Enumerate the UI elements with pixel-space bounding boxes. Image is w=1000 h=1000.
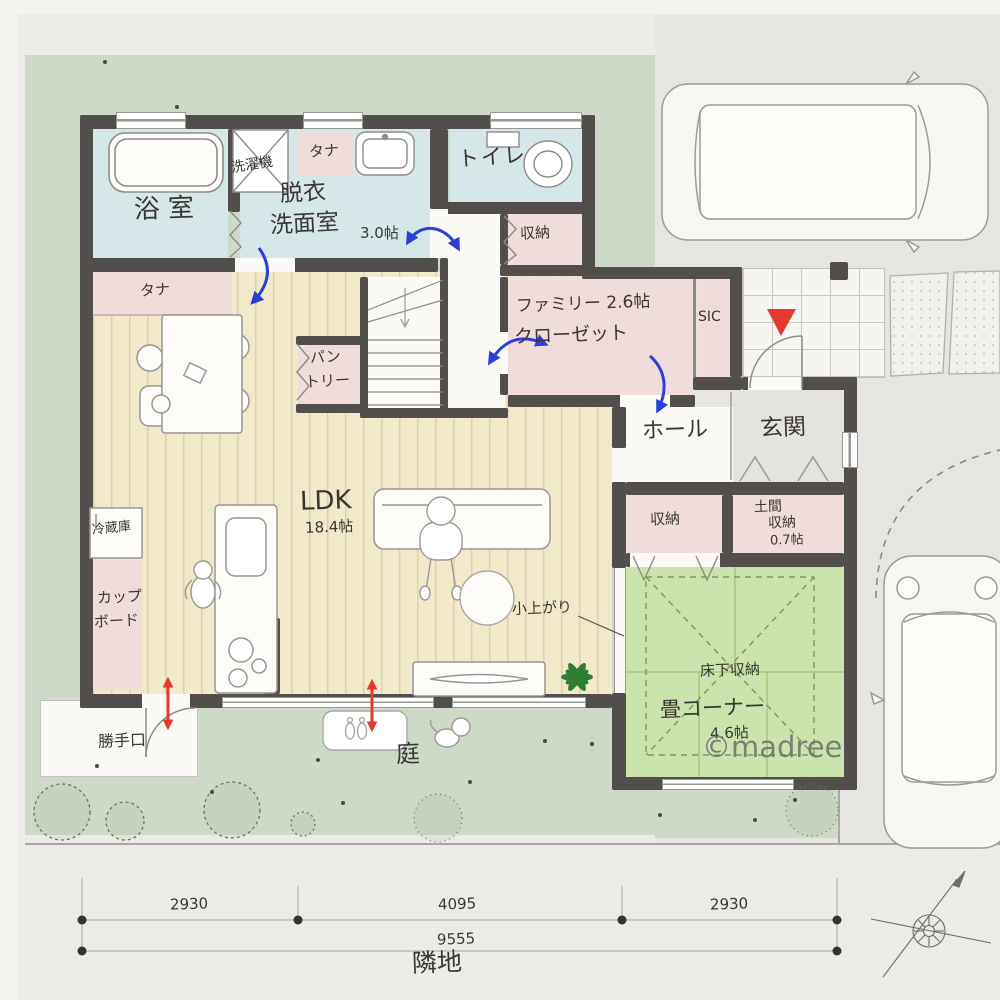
paper-margin-top (0, 0, 1000, 14)
wall (612, 693, 626, 783)
room-size-ldk: 18.4帖 (305, 519, 354, 536)
window (116, 112, 186, 129)
room-label-family-closet-1: ファミリー 2.6帖 (516, 294, 651, 316)
door-opening (235, 258, 295, 272)
wall (582, 267, 742, 279)
door-opening (430, 209, 448, 258)
dimension-label-total: 9555 (437, 931, 476, 947)
label-back-door: 勝手口 (98, 732, 147, 750)
door-opening (500, 332, 508, 374)
room-label-ldk: LDK (300, 487, 352, 515)
wall (722, 495, 733, 553)
room-label-toilet: トイレ (457, 145, 527, 171)
wall (612, 407, 626, 448)
wall (440, 258, 448, 412)
label-storage-upper: 収納 (520, 225, 551, 242)
wall (296, 404, 362, 413)
door-opening (748, 377, 802, 390)
wall (360, 408, 508, 418)
window (662, 779, 794, 790)
window (490, 112, 582, 129)
wall (730, 267, 742, 377)
label-floor-storage: 床下収納 (700, 662, 761, 679)
label-neighbor-site: 隣地 (412, 949, 463, 976)
door-opening (142, 694, 190, 708)
wall (500, 214, 508, 265)
door-opening (620, 395, 670, 407)
wall (360, 277, 368, 418)
label-cupboard-2: ボード (94, 613, 140, 630)
label-shelf-a: タナ (309, 143, 340, 160)
wall (500, 265, 595, 276)
label-storage-hall: 収納 (650, 511, 681, 527)
wall (693, 377, 742, 390)
label-garden: 庭 (396, 742, 421, 767)
wall (626, 482, 844, 495)
sliding-opening (614, 568, 626, 693)
window (842, 432, 858, 468)
room-label-bath: 浴室 (134, 195, 203, 223)
watermark: ©madree (702, 733, 842, 762)
wall (582, 115, 595, 279)
dimension-label-3: 2930 (710, 896, 749, 912)
label-doma-1: 土間 (754, 500, 782, 515)
room-label-tatami: 畳コーナー (660, 696, 766, 721)
stairs-room (368, 277, 443, 408)
label-doma-size: 0.7帖 (770, 533, 804, 547)
window (452, 697, 586, 708)
dimension-label-2: 4095 (438, 896, 477, 912)
window (222, 697, 434, 708)
wall (296, 336, 362, 345)
label-fridge: 冷蔵庫 (91, 520, 131, 537)
paper-margin-left (0, 0, 18, 1000)
north-indicator-icon (871, 871, 991, 977)
dimension-label-1: 2930 (170, 896, 209, 912)
label-doma-2: 収納 (768, 516, 796, 531)
corridor (443, 214, 505, 412)
entrance-porch-tiles (742, 268, 885, 378)
door-opening (630, 553, 720, 567)
wall (612, 482, 626, 568)
site-boundary-line-v (838, 788, 840, 845)
label-shelf-b: タナ (140, 282, 171, 299)
room-label-pantry-1: パン (310, 349, 342, 366)
label-cupboard-1: カップ (97, 589, 143, 606)
sic-room (697, 277, 730, 377)
wall (264, 618, 280, 694)
room-label-washroom-2: 洗面室 (269, 211, 339, 238)
room-label-hall: ホール (642, 419, 709, 443)
wall (430, 129, 448, 209)
room-label-sic: SIC (698, 310, 721, 324)
door-opening (612, 448, 626, 482)
wall (830, 262, 848, 280)
room-label-entrance: 玄関 (760, 416, 807, 441)
room-label-washroom-1: 脱衣 (279, 181, 326, 206)
wall (443, 202, 595, 214)
sic-divider (693, 277, 696, 377)
site-boundary-line (25, 843, 1000, 845)
room-label-pantry-2: トリー (305, 373, 351, 390)
wall (80, 115, 93, 708)
window (303, 112, 363, 129)
floor-plan-canvas: 浴室 洗濯機 タナ 脱衣 洗面室 3.0帖 トイレ 収納 ファミリー 2.6帖 … (0, 0, 1000, 1000)
label-koagari: 小上がり (512, 600, 573, 617)
room-size-washroom: 3.0帖 (360, 226, 399, 241)
room-label-family-closet-2: クローゼット (514, 324, 629, 347)
